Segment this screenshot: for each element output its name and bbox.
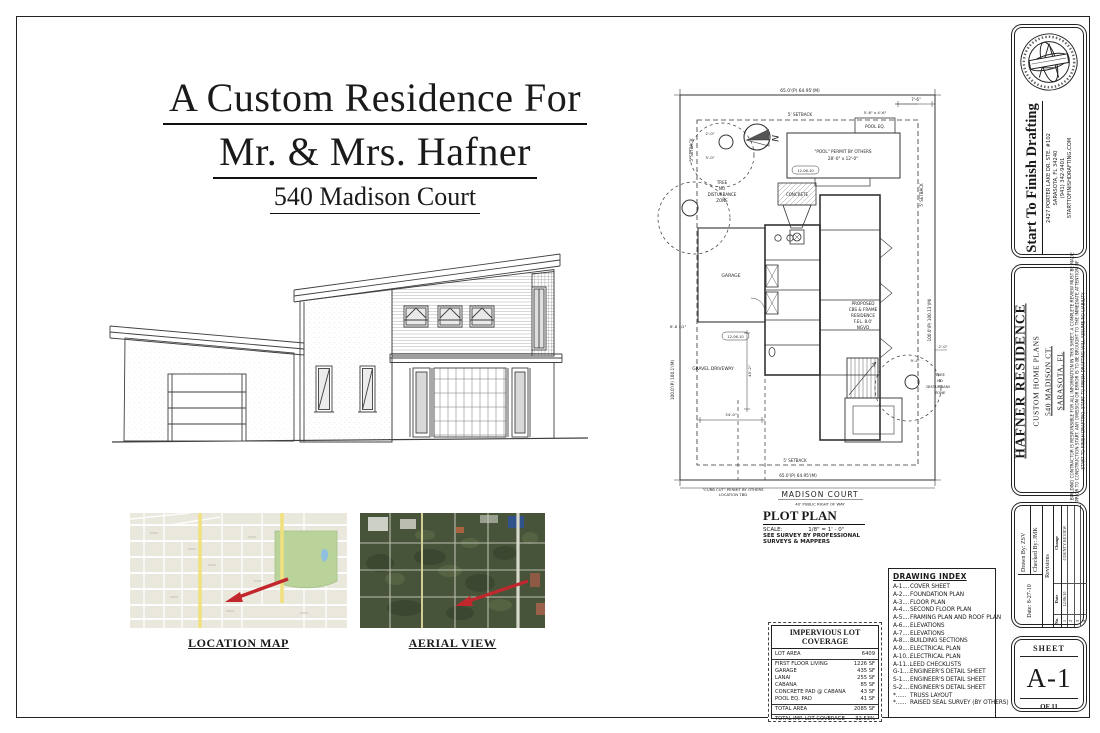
location-map-image xyxy=(130,513,347,628)
checked-by-cell: Checked By: JMK xyxy=(1031,505,1043,574)
sheet-label: SHEET xyxy=(1020,639,1078,657)
svg-text:DISTURBANCE: DISTURBANCE xyxy=(926,384,950,389)
index-item: A-9....ELECTRICAL PLAN xyxy=(893,646,991,654)
dim-9-4: 9'-4" xyxy=(911,358,920,363)
index-item: A-7....ELEVATIONS xyxy=(893,631,991,639)
page-subtitle: 540 Madison Court xyxy=(60,182,690,214)
dim-45-2: 45'-2" xyxy=(747,365,752,377)
dim-7-6: 7'-6" xyxy=(911,97,921,102)
residence-label: PROPOSED CBS & FRAME RESIDENCE F.EL. 8.0… xyxy=(849,301,878,330)
survey-note-2: SURVEYS & MAPPERS xyxy=(763,539,933,545)
svg-text:F.EL. 8.0': F.EL. 8.0' xyxy=(854,319,873,324)
tree-zone-label-left: TREE NO DISTURBANCE ZONE xyxy=(708,180,737,203)
title-block-project-section: HAFNER RESIDENCE CUSTOM HOME PLANS 540 M… xyxy=(1011,264,1087,496)
sheet-of: OF 11 xyxy=(1012,699,1086,711)
cover-sheet: A Custom Residence For Mr. & Mrs. Hafner… xyxy=(0,0,1100,733)
elevation-lines xyxy=(110,254,588,442)
dim-bottom: 65.0'(P) 64.95'(M) xyxy=(779,473,817,478)
title-block-firm-section: Start To Finish Drafting 2427 PORTER LAK… xyxy=(1011,24,1087,258)
drawing-index: DRAWING INDEX A-1....COVER SHEET A-2....… xyxy=(888,568,996,718)
index-item: *......TRUSS LAYOUT xyxy=(893,693,991,701)
dim-top: 65.0'(P) 64.95'(M) xyxy=(780,88,820,94)
svg-text:DISTURBANCE: DISTURBANCE xyxy=(708,192,737,197)
revision-table: Date: 8-27-10 Drawn By: ZSV Checked By: … xyxy=(1018,505,1080,627)
plot-plan-heading-block: PLOT PLAN SCALE: 1/8" = 1' - 0" SEE SURV… xyxy=(763,505,933,545)
index-item: A-3....FLOOR PLAN xyxy=(893,600,991,608)
title-block-revisions-section: Date: 8-27-10 Drawn By: ZSV Checked By: … xyxy=(1011,502,1087,628)
pool-eq-size: 5'-6" x 4'-6" xyxy=(864,110,887,115)
rev-tag-2: 12-06-10 xyxy=(727,335,744,339)
elevation-sketch xyxy=(108,246,608,461)
drawing-index-title: DRAWING INDEX xyxy=(893,572,991,581)
total-coverage-row: TOTAL IMP. LOT COVERAGE32.53% xyxy=(772,716,878,723)
date-cell: Date: 8-27-10 xyxy=(1018,574,1042,627)
dim-5-0: 5'-0" xyxy=(706,155,715,160)
garage-label: GARAGE xyxy=(721,273,740,279)
index-item: A-6....ELEVATIONS xyxy=(893,623,991,631)
disclaimer-text: THE BUILDING CONTRACTOR IS RESPONSIBLE F… xyxy=(1069,252,1085,510)
setback-left-label: 5' SETBACK xyxy=(689,138,694,162)
index-item: A-2....FOUNDATION PLAN xyxy=(893,592,991,600)
pool-eq-label: POOL EQ. xyxy=(865,124,885,129)
index-item: A-8....BUILDING SECTIONS xyxy=(893,638,991,646)
dim-2-0a: 2'-0" xyxy=(706,131,715,136)
index-item: S-2....ENGINEER'S DETAIL SHEET xyxy=(893,685,991,693)
index-item: A-11...LEED CHECKLISTS xyxy=(893,662,991,670)
dim-6-8: 6'-8 1/2" xyxy=(670,324,687,329)
svg-text:TREE: TREE xyxy=(716,180,728,185)
title-address: 540 Madison Court xyxy=(270,182,480,214)
aerial-view-image xyxy=(360,513,545,628)
coverage-row: POOL EQ. PAD41 SF xyxy=(772,696,878,703)
firm-logo xyxy=(1018,31,1080,93)
lot-coverage-title: IMPERVIOUS LOT COVERAGE xyxy=(772,626,878,649)
svg-text:NGVD: NGVD xyxy=(857,325,869,330)
project-city: SARASOTA, FL xyxy=(1055,352,1064,411)
revisions-title: Revisions xyxy=(1043,505,1053,627)
drawn-by-cell: Drawn By: ZSV xyxy=(1018,505,1031,574)
index-item: A-4....SECOND FLOOR PLAN xyxy=(893,607,991,615)
location-map-label: LOCATION MAP xyxy=(130,636,347,651)
coverage-row: CABANA85 SF xyxy=(772,682,878,689)
index-item: A-5....FRAMING PLAN AND ROOF PLAN xyxy=(893,615,991,623)
pool-label-2: 28'-0" x 12'-0" xyxy=(828,156,858,161)
plot-plan-heading: PLOT PLAN xyxy=(763,508,865,525)
index-item: A-10...ELECTRICAL PLAN xyxy=(893,654,991,662)
index-item: A-1....COVER SHEET xyxy=(893,584,991,592)
lot-area-row: LOT AREA6409 xyxy=(772,649,878,658)
revision-row: 4 xyxy=(1081,505,1086,627)
firm-name: Start To Finish Drafting xyxy=(1024,101,1043,254)
plot-plan-labels: 65.0'(P) 64.95'(M) 5' SETBACK 7'-6" 5'-6… xyxy=(670,88,950,507)
plot-plan: 65.0'(P) 64.95'(M) 5' SETBACK 7'-6" 5'-6… xyxy=(650,80,950,530)
svg-text:PROPOSED: PROPOSED xyxy=(851,301,874,306)
project-street: 540 MADISON CT. xyxy=(1043,346,1052,416)
title-block: Start To Finish Drafting 2427 PORTER LAK… xyxy=(1008,20,1092,716)
dim-34-0: 34'-0" xyxy=(725,412,737,417)
north-label: N xyxy=(769,135,779,142)
title-line-2: Mr. & Mrs. Hafner xyxy=(213,128,537,179)
coverage-row: LANAI255 SF xyxy=(772,675,878,682)
total-area-row: TOTAL AREA2085 SF xyxy=(772,706,878,713)
page-title-2: Mr. & Mrs. Hafner xyxy=(60,128,690,179)
coverage-row: GARAGE435 SF xyxy=(772,668,878,675)
coverage-row: FIRST FLOOR LIVING1226 SF xyxy=(772,661,878,668)
project-name: HAFNER RESIDENCE xyxy=(1012,303,1028,458)
firm-name-block: Start To Finish Drafting 2427 PORTER LAK… xyxy=(1012,103,1086,253)
svg-text:NO: NO xyxy=(719,186,725,191)
svg-text:TREE: TREE xyxy=(934,372,945,377)
lot-coverage-table: IMPERVIOUS LOT COVERAGE LOT AREA6409 FIR… xyxy=(768,622,882,722)
dim-2-0b: 2'-0" xyxy=(939,344,948,349)
coverage-row: CONCRETE PAD @ CABANA43 SF xyxy=(772,689,878,696)
sheet-number: A-1 xyxy=(1020,657,1078,699)
dim-left: 100.0'(P) 100.1'(M) xyxy=(670,359,675,400)
svg-text:RESIDENCE: RESIDENCE xyxy=(851,313,875,318)
revision-header: No. Date Change xyxy=(1054,505,1062,627)
concrete-label: CONCRETE xyxy=(786,192,808,197)
index-item: G-1....ENGINEER'S DETAIL SHEET xyxy=(893,669,991,677)
svg-text:ZONE: ZONE xyxy=(935,390,946,395)
svg-text:ZONE: ZONE xyxy=(716,198,728,203)
aerial-view-label: AERIAL VIEW xyxy=(360,636,545,651)
page-title: A Custom Residence For xyxy=(60,74,690,125)
pool-label-1: "POOL" PERMIT BY OTHERS xyxy=(814,149,872,154)
dim-right: 100.0'(P) 100.13'(M) xyxy=(927,298,932,341)
gravel-label: GRAVEL DRIVEWAY xyxy=(692,366,734,372)
curb-note-2: LOCATION TBD xyxy=(719,492,747,497)
svg-text:NO: NO xyxy=(937,378,943,383)
title-line-1: A Custom Residence For xyxy=(163,74,587,125)
rev-tag-1: 12-06-10 xyxy=(797,169,814,173)
setback-right-label: 5' SETBACK xyxy=(919,183,924,207)
svg-text:CBS & FRAME: CBS & FRAME xyxy=(849,307,878,312)
project-type: CUSTOM HOME PLANS xyxy=(1031,336,1040,427)
setback-bottom-label: 5' SETBACK xyxy=(783,458,807,463)
setback-top-label: 5' SETBACK xyxy=(788,112,813,117)
street-name: MADISON COURT xyxy=(781,490,858,499)
index-item: *......RAISED SEAL SURVEY (BY OTHERS) xyxy=(893,700,991,708)
firm-address: 2427 PORTER LAKE DR. STE. #102 SARASOTA,… xyxy=(1046,133,1074,223)
tree-zone-label-right: TREE NO DISTURBANCE ZONE xyxy=(926,372,950,395)
sheet-number-block: SHEET A-1 OF 11 xyxy=(1011,636,1087,712)
index-item: S-1....ENGINEER'S DETAIL SHEET xyxy=(893,677,991,685)
